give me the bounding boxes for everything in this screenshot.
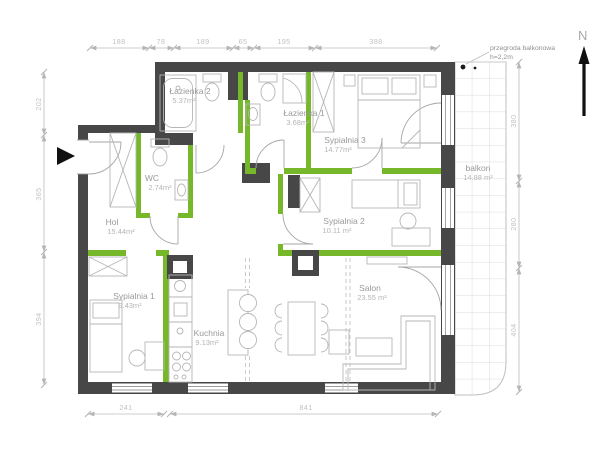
dim-top-1: 78 (157, 37, 166, 46)
room-label-kuchnia: Kuchnia (194, 328, 225, 338)
single-bed-icon-sypialnia1 (90, 300, 122, 372)
washbasin-icon-wc (175, 180, 188, 200)
room-label-sypialnia2: Sypialnia 2 (323, 216, 365, 226)
room-area-lazienka2: 5.37m² (172, 96, 196, 105)
kitchen-counter-icon (169, 275, 192, 382)
desk-icon-sypialnia2 (392, 213, 430, 246)
room-area-balkon: 14.88 m² (463, 173, 493, 182)
entrance-arrow-icon (57, 147, 75, 165)
dimension-chain-bottom: 241 841 (85, 403, 441, 417)
wall-notch (78, 125, 165, 133)
dim-top-5: 388 (369, 37, 382, 46)
shower-icon (283, 74, 306, 103)
room-label-lazienka1: Łazienka 1 (283, 108, 324, 118)
dim-left-0: 202 (34, 97, 43, 110)
salon-balcony-door (398, 267, 441, 310)
room-area-sypialnia1: 9.43m² (118, 301, 142, 310)
room-label-salon: Salon (359, 283, 381, 293)
room-label-sypialnia3: Sypialnia 3 (324, 135, 366, 145)
dim-top-4: 195 (277, 37, 290, 46)
annotation-line2: h=2,2m (490, 54, 513, 61)
room-area-kuchnia: 9.13m² (195, 338, 219, 347)
dim-top-3: 65 (239, 37, 248, 46)
room-label-wc: WC (145, 173, 159, 183)
room-label-lazienka2: Łazienka 2 (169, 86, 210, 96)
doors (89, 103, 441, 310)
dimension-chain-right: 380 280 404 (509, 59, 522, 395)
dimension-chain-left: 202 365 394 (34, 69, 47, 388)
wardrobe-icon-sypialnia3 (313, 72, 334, 132)
toilet-icon-lazienka1 (259, 74, 277, 101)
furniture (89, 72, 436, 390)
wall-top (155, 62, 455, 72)
kitchen-island-icon (228, 290, 257, 355)
dining-table-icon (275, 302, 328, 355)
lazienka2-door (196, 145, 224, 173)
single-bed-icon-sypialnia2 (352, 180, 420, 208)
dim-bottom-1: 841 (299, 403, 312, 412)
room-label-balkon: balkon (465, 163, 490, 173)
coffee-table-icon (356, 338, 392, 356)
room-label-sypialnia1: Sypialnia 1 (113, 291, 155, 301)
dim-right-0: 380 (509, 114, 518, 127)
room-area-hol: 15.44m² (107, 227, 135, 236)
desk-icon-sypialnia1 (129, 342, 164, 370)
room-area-salon: 23.55 m² (357, 293, 387, 302)
sypialnia2-door (283, 214, 313, 244)
partition-walls (88, 72, 441, 382)
dim-bottom-0: 241 (119, 403, 132, 412)
zone-separator-dashed (246, 258, 351, 382)
floor-plan: Łazienka 2 5.37m² Łazienka 1 3.68m² WC 2… (0, 0, 600, 456)
north-label: N (578, 28, 587, 43)
dim-right-2: 404 (509, 323, 518, 336)
wc-door (150, 216, 178, 244)
annotation-line1: przegroda balkonowa (490, 45, 555, 52)
dim-left-2: 394 (34, 312, 43, 325)
room-area-sypialnia2: 10.11 m² (322, 226, 352, 235)
balcony (455, 62, 506, 395)
room-area-lazienka1: 3.68m² (286, 118, 310, 127)
sypialnia3-balcony-door (401, 103, 441, 143)
wardrobe-icon-sypialnia2 (300, 178, 320, 212)
north-arrowhead (579, 46, 590, 64)
dimension-chain-top: 188 78 189 65 195 388 (87, 37, 440, 51)
pillar-corridor (288, 175, 300, 208)
dim-top-2: 189 (196, 37, 209, 46)
room-area-sypialnia3: 14.77m² (324, 145, 352, 154)
room-label-hol: Hol (106, 217, 119, 227)
dim-top-0: 188 (112, 37, 125, 46)
dim-right-1: 280 (509, 217, 518, 230)
tv-console-icon (367, 257, 407, 264)
north-arrow: N (578, 28, 590, 116)
floor-plan-page: Łazienka 2 5.37m² Łazienka 1 3.68m² WC 2… (0, 0, 600, 456)
sofa-icon (343, 316, 435, 390)
dim-left-1: 365 (34, 187, 43, 200)
room-area-wc: 2.74m² (148, 183, 172, 192)
entrance-door (89, 142, 121, 174)
wardrobe-icon-hol (110, 133, 136, 207)
wardrobe-icon-sypialnia1 (89, 257, 127, 276)
